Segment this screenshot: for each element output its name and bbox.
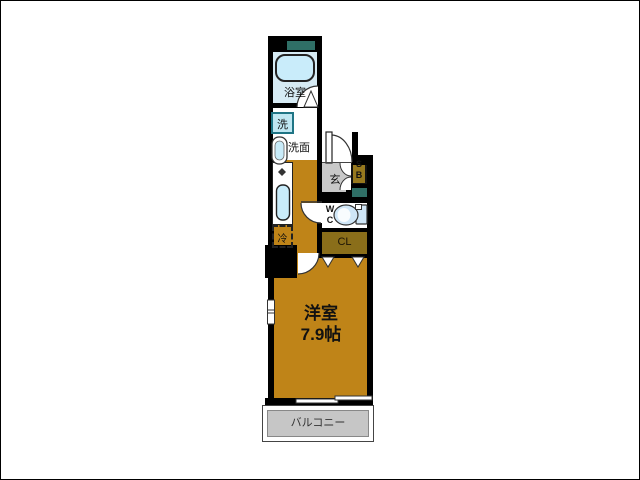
wall-wc-closet bbox=[322, 228, 373, 232]
vanity-label: 洗面 bbox=[288, 139, 310, 155]
refrigerator-label: 冷 bbox=[272, 230, 293, 245]
wc-label: WC bbox=[323, 204, 337, 226]
shoebox-label: SB bbox=[351, 159, 367, 181]
pipe-space bbox=[352, 188, 367, 197]
entrance-door-arc bbox=[322, 132, 352, 163]
main-room-label: 洋室7.9帖 bbox=[275, 303, 367, 345]
closet-label: CL bbox=[322, 236, 367, 248]
entrance-label: 玄 bbox=[322, 171, 348, 187]
bathroom-label: 浴室 bbox=[273, 84, 317, 100]
wall-closet-bottom bbox=[317, 254, 373, 258]
wall-entrance-bottom bbox=[322, 192, 352, 203]
kitchen-counter bbox=[272, 162, 293, 225]
bathroom-window bbox=[287, 41, 315, 50]
wall-bottom bbox=[265, 398, 373, 405]
wall-right-main bbox=[367, 160, 373, 405]
washing-machine-label: 洗 bbox=[271, 116, 294, 132]
balcony-label: バルコニー bbox=[267, 414, 369, 430]
wall-corner-chunk bbox=[265, 245, 297, 278]
floorplan-image: 浴室 洗 洗面 玄 SB WC CL 冷 洋室7.9帖 バルコニー bbox=[0, 0, 640, 480]
